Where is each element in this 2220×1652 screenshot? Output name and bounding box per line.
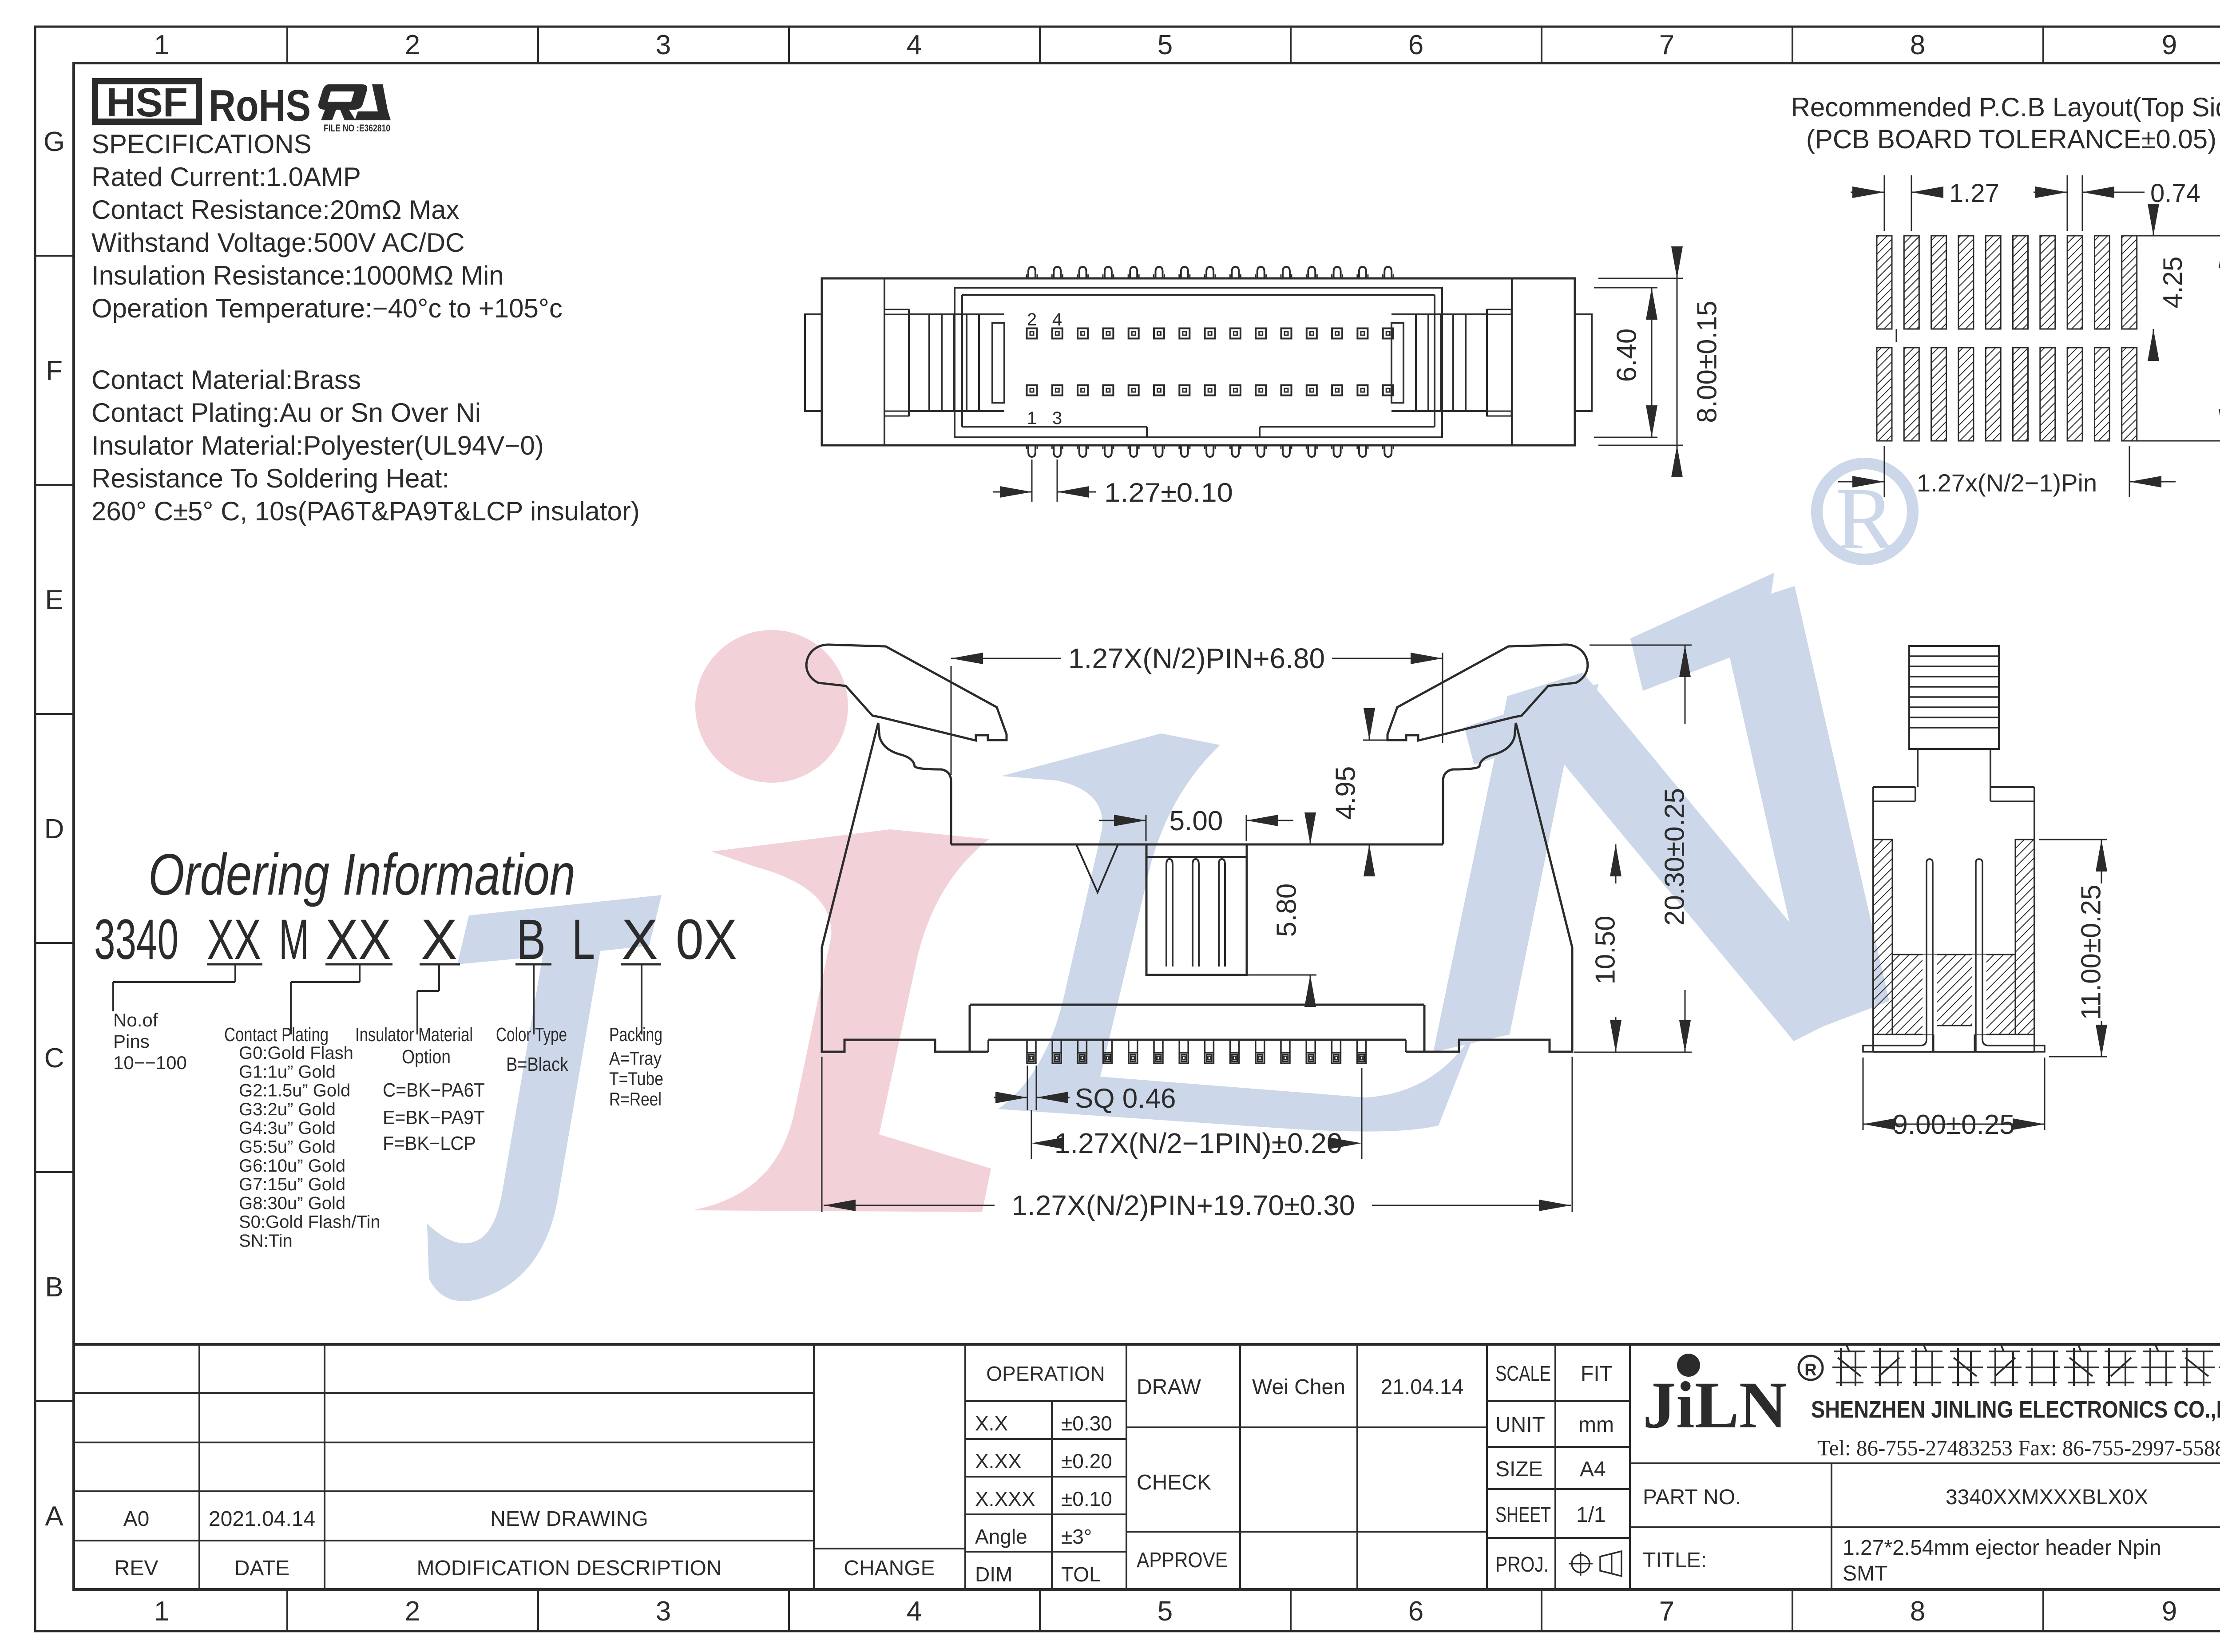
svg-text:5: 5 — [1158, 1596, 1173, 1627]
svg-text:SQ 0.46: SQ 0.46 — [1075, 1083, 1176, 1114]
svg-text:G5:5u” Gold: G5:5u” Gold — [239, 1137, 336, 1157]
svg-text:Option: Option — [402, 1046, 451, 1068]
svg-text:2: 2 — [405, 1596, 420, 1627]
svg-text:A4: A4 — [1580, 1458, 1606, 1481]
svg-text:11.00±0.25: 11.00±0.25 — [2076, 884, 2106, 1020]
svg-text:4: 4 — [907, 30, 922, 60]
svg-text:3340XXMXXXBLX0X: 3340XXMXXXBLX0X — [1946, 1486, 2148, 1509]
svg-text:2021.04.14: 2021.04.14 — [209, 1507, 315, 1531]
svg-text:PROJ.: PROJ. — [1495, 1553, 1549, 1577]
svg-text:L: L — [572, 908, 595, 971]
svg-text:1.27*2.54mm ejector header: 1.27*2.54mm ejector header Npin — [1843, 1536, 2161, 1560]
svg-text:D: D — [44, 814, 64, 844]
svg-text:5.00: 5.00 — [1169, 806, 1223, 836]
svg-text:2: 2 — [405, 30, 420, 60]
svg-text:SHENZHEN JINLING ELECTRONICS C: SHENZHEN JINLING ELECTRONICS CO.,LTD — [1811, 1396, 2220, 1423]
svg-text:Contact Plating: Contact Plating — [224, 1024, 329, 1046]
svg-text:X.X: X.X — [975, 1412, 1008, 1435]
svg-text:UNIT: UNIT — [1495, 1413, 1545, 1437]
svg-text:5: 5 — [1158, 30, 1173, 60]
svg-text:X.XX: X.XX — [975, 1450, 1022, 1473]
svg-text:G3:2u” Gold: G3:2u” Gold — [239, 1100, 336, 1119]
svg-text:10.50: 10.50 — [1590, 915, 1621, 984]
svg-text:20.30±0.25: 20.30±0.25 — [1659, 788, 1690, 926]
svg-text:Contact Plating:Au or Sn O: Contact Plating:Au or Sn Over Ni — [91, 398, 481, 428]
svg-text:SIZE: SIZE — [1495, 1458, 1543, 1481]
svg-text:RoHS: RoHS — [209, 81, 311, 131]
svg-text:T=Tube: T=Tube — [609, 1068, 663, 1089]
svg-text:3: 3 — [1052, 408, 1062, 428]
svg-text:1: 1 — [154, 30, 169, 60]
svg-text:G: G — [44, 127, 65, 157]
svg-text:Insulator Material: Insulator Material — [355, 1024, 473, 1046]
svg-text:E: E — [45, 585, 63, 615]
svg-text:DATE: DATE — [234, 1557, 289, 1580]
svg-text:NEW DRAWING: NEW DRAWING — [490, 1507, 648, 1531]
svg-text:SHEET: SHEET — [1495, 1503, 1551, 1527]
svg-text:XX: XX — [325, 908, 391, 971]
svg-text:1/1: 1/1 — [1576, 1503, 1606, 1527]
svg-text:Contact Material:Brass: Contact Material:Brass — [91, 365, 361, 395]
svg-text:Insulator Material:Polyester(: Insulator Material:Polyester(UL94V−0) — [91, 431, 544, 460]
svg-text:DIM: DIM — [975, 1563, 1012, 1586]
svg-text:5.80: 5.80 — [1271, 883, 1302, 937]
svg-text:TITLE:: TITLE: — [1643, 1549, 1707, 1572]
svg-text:6.40: 6.40 — [1611, 329, 1642, 382]
svg-text:SPECIFICATIONS: SPECIFICATIONS — [91, 129, 312, 159]
svg-text:Ordering Information: Ordering Information — [148, 842, 575, 907]
svg-text:8: 8 — [1910, 1596, 1925, 1627]
svg-text:SCALE: SCALE — [1495, 1362, 1551, 1386]
svg-text:260° C±5° C, 10s(PA6T&PA9T&LCP: 260° C±5° C, 10s(PA6T&PA9T&LCP insulator… — [91, 496, 640, 526]
svg-text:4: 4 — [1052, 310, 1062, 329]
svg-text:Withstand Voltage:500V AC/DC: Withstand Voltage:500V AC/DC — [91, 228, 464, 258]
svg-text:OPERATION: OPERATION — [986, 1362, 1105, 1385]
svg-text:C: C — [44, 1043, 64, 1074]
svg-text:1: 1 — [1027, 408, 1037, 428]
svg-text:6: 6 — [1408, 30, 1423, 60]
svg-text:Angle: Angle — [975, 1525, 1027, 1548]
svg-text:Rated Current:1.0AMP: Rated Current:1.0AMP — [91, 162, 361, 192]
svg-text:TOL: TOL — [1061, 1563, 1101, 1586]
svg-text:1.27x(N/2−1)Pin: 1.27x(N/2−1)Pin — [1917, 469, 2097, 497]
svg-text:3: 3 — [656, 1596, 671, 1627]
svg-text:B=Black: B=Black — [506, 1054, 569, 1075]
svg-text:±0.10: ±0.10 — [1061, 1487, 1112, 1510]
svg-text:Pins: Pins — [113, 1031, 150, 1052]
svg-text:1.27: 1.27 — [1949, 179, 1999, 208]
svg-text:DRAW: DRAW — [1137, 1375, 1201, 1399]
svg-text:0X: 0X — [676, 908, 737, 971]
svg-text:G0:Gold Flash: G0:Gold Flash — [239, 1043, 353, 1063]
svg-text:8: 8 — [1910, 30, 1925, 60]
svg-text:HSF: HSF — [106, 80, 188, 125]
svg-text:4: 4 — [907, 1596, 922, 1627]
svg-text:G7:15u” Gold: G7:15u” Gold — [239, 1175, 345, 1194]
svg-text:7: 7 — [1659, 1596, 1674, 1627]
svg-text:F=BK−LCP: F=BK−LCP — [383, 1133, 476, 1154]
svg-text:X: X — [622, 908, 658, 971]
svg-text:JiLN: JiLN — [1643, 1368, 1787, 1442]
svg-text:7: 7 — [1659, 30, 1674, 60]
svg-text:4.25: 4.25 — [2158, 257, 2188, 309]
svg-text:G1:1u” Gold: G1:1u” Gold — [239, 1062, 336, 1082]
svg-text:MODIFICATION DESCRIPTION: MODIFICATION DESCRIPTION — [416, 1557, 721, 1580]
svg-text:X: X — [421, 908, 457, 971]
svg-text:1.27X(N/2)PIN+6.80: 1.27X(N/2)PIN+6.80 — [1068, 642, 1325, 674]
svg-text:APPROVE: APPROVE — [1137, 1549, 1228, 1572]
svg-text:Wei Chen: Wei Chen — [1252, 1375, 1345, 1399]
svg-text:C=BK−PA6T: C=BK−PA6T — [383, 1079, 485, 1101]
svg-text:Recommended P.C.B Layout(Top: Recommended P.C.B Layout(Top Side) — [1791, 92, 2220, 122]
svg-text:R=Reel: R=Reel — [609, 1089, 662, 1109]
svg-text:REV: REV — [115, 1557, 159, 1580]
svg-text:E=BK−PA9T: E=BK−PA9T — [383, 1107, 485, 1129]
svg-text:3340: 3340 — [94, 908, 178, 971]
svg-text:M: M — [279, 908, 309, 971]
svg-text:No.of: No.of — [113, 1010, 158, 1030]
svg-text:B: B — [45, 1272, 63, 1303]
svg-text:X.XXX: X.XXX — [975, 1487, 1035, 1510]
svg-text:Packing: Packing — [609, 1024, 662, 1046]
svg-text:(PCB BOARD TOLERANCE±0.05): (PCB BOARD TOLERANCE±0.05) — [1806, 124, 2216, 154]
svg-text:1.27X(N/2)PIN+19.70±0.30: 1.27X(N/2)PIN+19.70±0.30 — [1011, 1189, 1355, 1221]
svg-text:FIT: FIT — [1581, 1362, 1613, 1386]
svg-text:21.04.14: 21.04.14 — [1381, 1375, 1464, 1399]
svg-text:Operation Temperature:−40°c: Operation Temperature:−40°c to +105°c — [91, 293, 563, 323]
svg-text:G6:10u” Gold: G6:10u” Gold — [239, 1156, 345, 1176]
svg-text:Tel: 86-755-27483253 Fax: 86-: Tel: 86-755-27483253 Fax: 86-755-2997-55… — [1817, 1435, 2220, 1460]
svg-text:4.95: 4.95 — [1330, 766, 1361, 820]
svg-text:Contact Resistance:20mΩ Max: Contact Resistance:20mΩ Max — [91, 195, 460, 225]
svg-text:CHECK: CHECK — [1137, 1471, 1211, 1494]
svg-text:CHANGE: CHANGE — [844, 1557, 935, 1580]
svg-text:±3°: ±3° — [1061, 1525, 1092, 1548]
svg-text:FILE NO :E362810: FILE NO :E362810 — [324, 123, 390, 134]
svg-text:mm: mm — [1578, 1413, 1614, 1437]
svg-text:2: 2 — [1027, 310, 1037, 329]
svg-text:1.27±0.10: 1.27±0.10 — [1104, 478, 1233, 507]
svg-text:A0: A0 — [123, 1507, 150, 1531]
svg-text:SMT: SMT — [1843, 1562, 1887, 1585]
svg-text:1.27X(N/2−1PIN)±0.20: 1.27X(N/2−1PIN)±0.20 — [1054, 1127, 1343, 1159]
svg-text:A=Tray: A=Tray — [609, 1048, 662, 1069]
svg-text:0.74: 0.74 — [2150, 179, 2200, 208]
svg-text:G4:3u” Gold: G4:3u” Gold — [239, 1118, 336, 1138]
svg-text:B: B — [516, 908, 546, 971]
svg-text:Insulation Resistance:1000MΩ: Insulation Resistance:1000MΩ Min — [91, 261, 504, 290]
svg-text:Resistance To Soldering Hea: Resistance To Soldering Heat: — [91, 464, 449, 493]
svg-text:G8:30u” Gold: G8:30u” Gold — [239, 1193, 345, 1213]
svg-text:±0.30: ±0.30 — [1061, 1412, 1112, 1435]
svg-text:XX: XX — [207, 908, 261, 971]
svg-text:F: F — [46, 356, 63, 386]
svg-text:R: R — [1804, 1361, 1816, 1379]
svg-text:9: 9 — [2162, 30, 2177, 60]
svg-text:A: A — [45, 1501, 63, 1532]
svg-text:S0:Gold Flash/Tin: S0:Gold Flash/Tin — [239, 1212, 381, 1232]
svg-text:G2:1.5u” Gold: G2:1.5u” Gold — [239, 1081, 350, 1101]
svg-text:9: 9 — [2162, 1596, 2177, 1627]
svg-text:±0.20: ±0.20 — [1061, 1450, 1112, 1473]
svg-text:PART NO.: PART NO. — [1643, 1486, 1741, 1509]
svg-text:8.00±0.15: 8.00±0.15 — [1692, 301, 1722, 423]
svg-text:Color Type: Color Type — [496, 1024, 567, 1046]
svg-text:3: 3 — [656, 30, 671, 60]
svg-text:1: 1 — [154, 1596, 169, 1627]
svg-text:10−−100: 10−−100 — [113, 1052, 187, 1073]
svg-text:9.00±0.25: 9.00±0.25 — [1892, 1109, 2014, 1140]
svg-text:6: 6 — [1408, 1596, 1423, 1627]
svg-text:SN:Tin: SN:Tin — [239, 1231, 293, 1251]
